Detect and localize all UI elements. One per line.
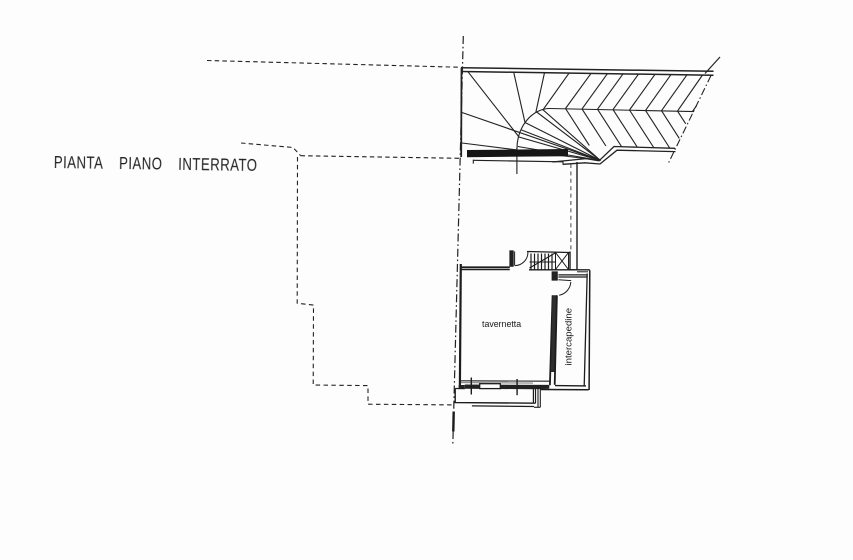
svg-text:tavernetta: tavernetta: [482, 319, 521, 329]
svg-text:intercapedine: intercapedine: [563, 308, 574, 366]
